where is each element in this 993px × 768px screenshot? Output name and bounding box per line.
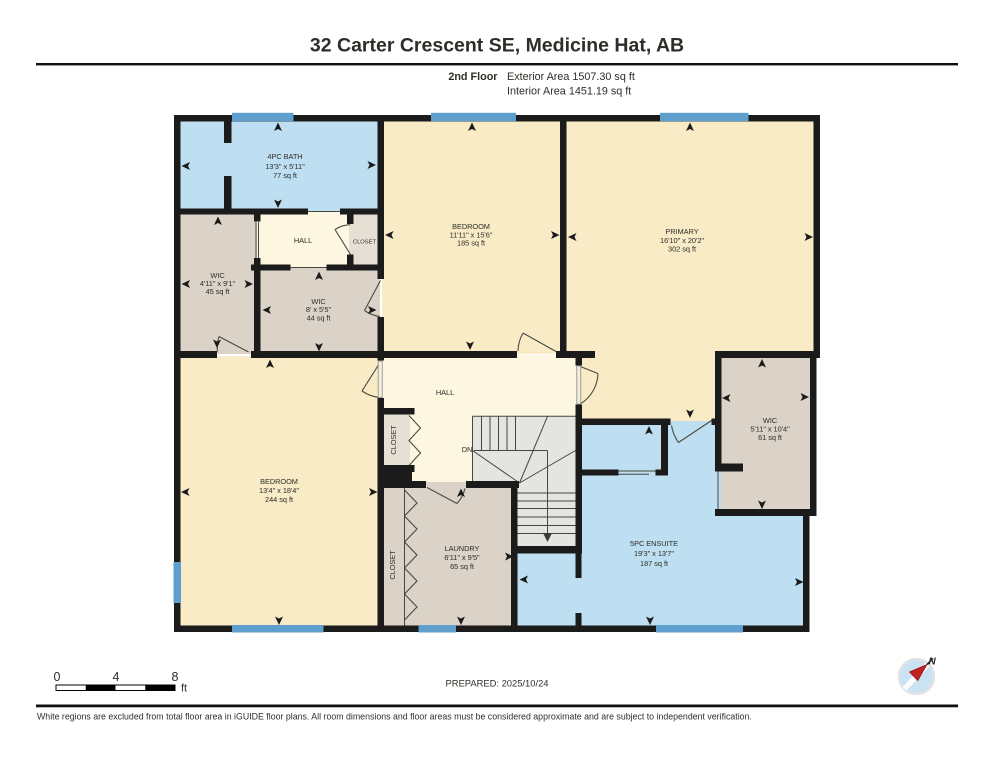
svg-text:Exterior Area 1507.30 sq ft: Exterior Area 1507.30 sq ft xyxy=(507,71,635,83)
svg-text:302 sq ft: 302 sq ft xyxy=(668,245,696,254)
svg-text:4PC BATH: 4PC BATH xyxy=(267,152,302,161)
svg-text:CLOSET: CLOSET xyxy=(389,425,398,455)
svg-text:BEDROOM: BEDROOM xyxy=(260,477,298,486)
svg-text:77 sq ft: 77 sq ft xyxy=(273,171,297,180)
svg-text:Interior Area 1451.19 sq ft: Interior Area 1451.19 sq ft xyxy=(507,86,631,98)
svg-text:N: N xyxy=(929,657,937,668)
svg-text:LAUNDRY: LAUNDRY xyxy=(445,544,480,553)
svg-text:PRIMARY: PRIMARY xyxy=(665,227,698,236)
svg-text:44 sq ft: 44 sq ft xyxy=(307,314,331,323)
svg-text:187 sq ft: 187 sq ft xyxy=(640,559,668,568)
svg-text:244 sq ft: 244 sq ft xyxy=(265,495,293,504)
svg-text:White regions are excluded fro: White regions are excluded from total fl… xyxy=(37,712,752,722)
svg-text:185 sq ft: 185 sq ft xyxy=(457,239,485,248)
svg-text:HALL: HALL xyxy=(294,236,312,245)
svg-text:CLOSET: CLOSET xyxy=(388,550,397,580)
svg-text:CLOSET: CLOSET xyxy=(353,240,377,246)
svg-text:13'3" x 5'11": 13'3" x 5'11" xyxy=(265,162,305,171)
svg-text:6'11" x 9'5": 6'11" x 9'5" xyxy=(444,553,480,562)
svg-text:45 sq ft: 45 sq ft xyxy=(206,287,230,296)
svg-text:DN: DN xyxy=(462,445,473,454)
svg-text:8: 8 xyxy=(172,670,179,684)
svg-text:0: 0 xyxy=(54,670,61,684)
svg-text:PREPARED: 2025/10/24: PREPARED: 2025/10/24 xyxy=(445,678,548,689)
svg-text:13'4" x 18'4": 13'4" x 18'4" xyxy=(259,486,299,495)
svg-text:32 Carter Crescent SE, Medicin: 32 Carter Crescent SE, Medicine Hat, AB xyxy=(310,35,684,57)
svg-text:65 sq ft: 65 sq ft xyxy=(450,562,474,571)
svg-text:61 sq ft: 61 sq ft xyxy=(758,433,782,442)
svg-text:ft: ft xyxy=(181,683,187,695)
svg-text:2nd Floor: 2nd Floor xyxy=(448,71,498,83)
svg-text:HALL: HALL xyxy=(436,388,454,397)
svg-text:4: 4 xyxy=(113,670,120,684)
svg-text:5PC ENSUITE: 5PC ENSUITE xyxy=(630,539,678,548)
svg-text:19'3" x 13'7": 19'3" x 13'7" xyxy=(634,549,674,558)
